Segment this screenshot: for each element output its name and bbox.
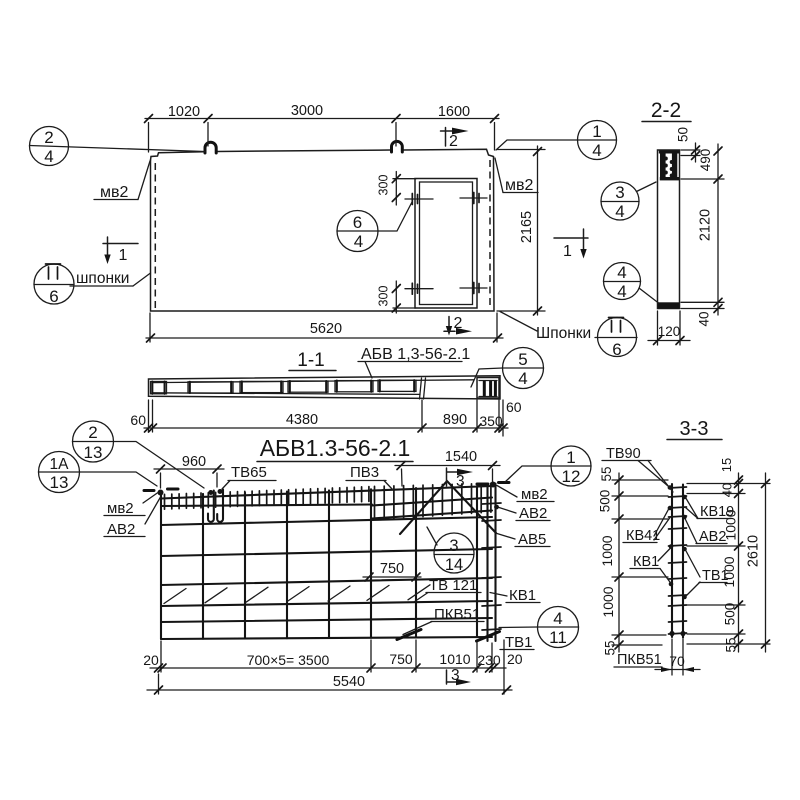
svg-text:3-3: 3-3	[680, 418, 709, 440]
svg-text:11: 11	[549, 628, 567, 647]
svg-text:АВ5: АВ5	[518, 531, 546, 548]
svg-text:ПВ3: ПВ3	[350, 464, 379, 481]
svg-text:890: 890	[443, 412, 467, 428]
svg-text:1600: 1600	[438, 104, 470, 120]
svg-text:6: 6	[353, 213, 362, 232]
svg-text:120: 120	[658, 324, 681, 339]
svg-text:700×5= 3500: 700×5= 3500	[247, 652, 330, 668]
svg-text:ТВ65: ТВ65	[231, 464, 267, 481]
svg-text:50: 50	[676, 127, 691, 142]
svg-text:6: 6	[612, 340, 621, 359]
svg-text:ПКВ51: ПКВ51	[617, 652, 662, 668]
svg-text:55: 55	[724, 637, 739, 652]
svg-text:2610: 2610	[746, 535, 762, 567]
svg-text:15: 15	[719, 458, 734, 472]
svg-text:1: 1	[592, 122, 601, 141]
svg-text:1: 1	[563, 243, 572, 260]
svg-text:1: 1	[119, 247, 128, 264]
svg-text:2: 2	[449, 133, 458, 150]
svg-text:4380: 4380	[286, 412, 318, 428]
svg-text:4: 4	[617, 263, 626, 282]
svg-text:3: 3	[456, 473, 465, 490]
svg-text:1540: 1540	[445, 449, 477, 465]
svg-text:4: 4	[354, 232, 363, 251]
svg-text:60: 60	[130, 412, 146, 428]
svg-text:2120: 2120	[698, 209, 714, 241]
svg-text:АВ2: АВ2	[699, 529, 726, 545]
svg-text:1-1: 1-1	[297, 350, 324, 371]
svg-text:1: 1	[566, 448, 575, 467]
svg-text:750: 750	[389, 651, 413, 667]
svg-text:4: 4	[617, 282, 626, 301]
svg-text:12: 12	[562, 467, 581, 486]
svg-text:5620: 5620	[310, 321, 342, 337]
svg-text:13: 13	[50, 473, 69, 492]
svg-text:300: 300	[377, 175, 391, 196]
svg-text:3: 3	[615, 183, 624, 202]
svg-text:1000: 1000	[599, 535, 615, 566]
svg-text:500: 500	[723, 603, 738, 626]
svg-text:мв2: мв2	[107, 500, 134, 517]
svg-text:4: 4	[553, 609, 562, 628]
svg-text:20: 20	[143, 652, 159, 668]
svg-text:960: 960	[182, 454, 206, 470]
svg-text:1000: 1000	[600, 586, 616, 617]
svg-text:АБВ1.3-56-2.1: АБВ1.3-56-2.1	[260, 435, 411, 461]
svg-text:20: 20	[507, 651, 523, 667]
svg-text:АБВ 1,3-56-2.1: АБВ 1,3-56-2.1	[361, 346, 470, 363]
svg-text:АВ2: АВ2	[107, 521, 135, 538]
svg-text:ПКВ51: ПКВ51	[434, 606, 480, 623]
svg-text:мв2: мв2	[521, 486, 548, 503]
svg-text:АВ2: АВ2	[519, 505, 547, 522]
svg-text:3: 3	[451, 667, 460, 684]
svg-text:40: 40	[720, 483, 735, 497]
svg-text:500: 500	[598, 490, 613, 513]
svg-text:Шпонки: Шпонки	[536, 325, 591, 342]
svg-text:ТВ1: ТВ1	[505, 634, 533, 651]
svg-text:55: 55	[599, 466, 614, 481]
svg-text:4: 4	[44, 147, 53, 166]
svg-text:2: 2	[88, 423, 97, 442]
svg-text:2: 2	[44, 128, 53, 147]
svg-text:2165: 2165	[519, 211, 535, 243]
svg-text:4: 4	[518, 369, 527, 388]
svg-text:60: 60	[506, 399, 522, 415]
svg-text:350: 350	[479, 413, 503, 429]
svg-text:КВ41: КВ41	[626, 528, 660, 544]
svg-text:1020: 1020	[168, 104, 200, 120]
svg-text:5: 5	[518, 350, 527, 369]
svg-text:КВ1: КВ1	[509, 587, 536, 604]
svg-text:3000: 3000	[291, 103, 323, 119]
svg-text:5540: 5540	[333, 674, 365, 690]
svg-text:ТВ1: ТВ1	[702, 568, 729, 584]
svg-text:6: 6	[49, 287, 58, 306]
svg-text:300: 300	[377, 286, 391, 307]
svg-text:70: 70	[669, 653, 685, 669]
svg-text:14: 14	[445, 556, 463, 574]
svg-text:40: 40	[697, 311, 712, 326]
svg-text:750: 750	[380, 561, 404, 577]
svg-text:ТВ 121: ТВ 121	[429, 577, 477, 594]
svg-text:1А: 1А	[50, 456, 70, 473]
svg-text:2-2: 2-2	[651, 99, 681, 122]
svg-text:шпонки: шпонки	[76, 270, 129, 287]
svg-text:2: 2	[454, 315, 463, 332]
svg-text:ТВ90: ТВ90	[606, 446, 641, 462]
svg-text:КВ19: КВ19	[700, 504, 734, 520]
svg-text:1010: 1010	[439, 651, 470, 667]
svg-text:490: 490	[698, 149, 713, 172]
svg-text:4: 4	[592, 141, 601, 160]
svg-text:мв2: мв2	[100, 184, 129, 201]
svg-text:3: 3	[449, 537, 458, 555]
svg-text:230: 230	[477, 652, 501, 668]
svg-text:4: 4	[615, 202, 624, 221]
svg-text:13: 13	[84, 443, 103, 462]
svg-text:мв2: мв2	[505, 177, 534, 194]
svg-text:КВ1: КВ1	[633, 554, 659, 570]
svg-text:55: 55	[603, 640, 618, 655]
